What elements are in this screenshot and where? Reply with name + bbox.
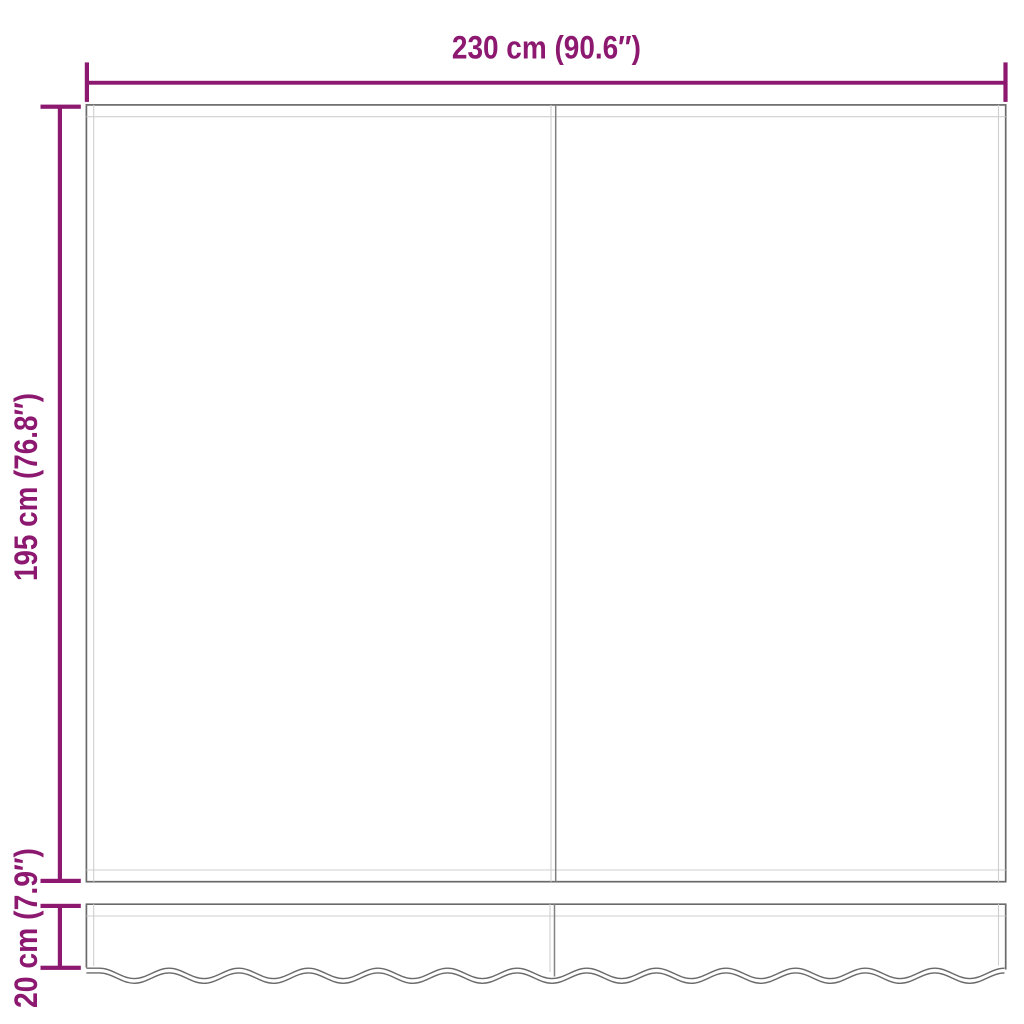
svg-text:195 cm (76.8″): 195 cm (76.8″) [8,393,44,581]
svg-text:230 cm (90.6″): 230 cm (90.6″) [452,30,641,66]
svg-text:20 cm (7.9″): 20 cm (7.9″) [8,848,44,1008]
